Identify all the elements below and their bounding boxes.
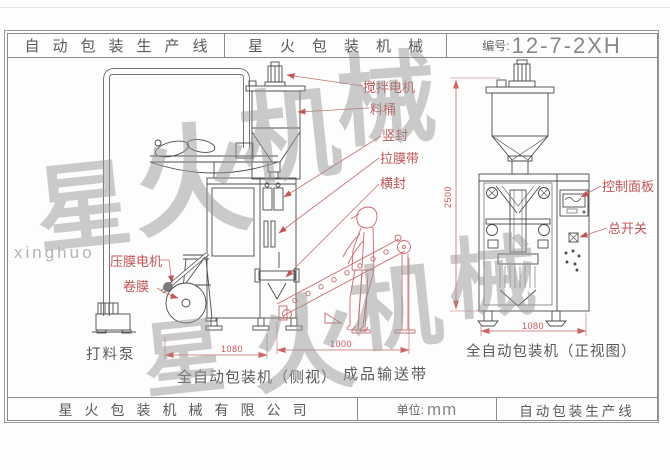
drawing-number-label: 编号: <box>482 37 509 54</box>
label-main-switch: 总开关 <box>608 218 647 237</box>
label-vertical-seal: 竖封 <box>382 125 408 144</box>
caption-side-view: 全自动包装机（侧视） <box>177 366 337 387</box>
top-motor <box>497 60 535 87</box>
unit-value: mm <box>427 400 457 420</box>
label-film-press-motor: 压膜电机 <box>110 251 162 270</box>
footer-product-line: 自动包装生产线 <box>497 398 657 421</box>
dim-front-width: 1080 <box>506 321 560 331</box>
dim-conveyor-length: 1000 <box>315 339 367 349</box>
hopper-tank <box>246 62 305 179</box>
dim-side-width: 1080 <box>204 344 260 354</box>
header-drawing-number: 编号: 12-7-2XH <box>447 34 657 57</box>
label-control-panel: 控制面板 <box>602 176 654 195</box>
footer-unit: 单位: mm <box>358 398 497 421</box>
title-block-header: 自动包装生产线 星火包装机械 编号: 12-7-2XH <box>8 34 657 58</box>
front-view-drawing <box>478 60 589 326</box>
label-horizontal-seal: 横封 <box>380 173 406 192</box>
funnel-hopper <box>486 87 554 174</box>
caption-feed-pump: 打料泵 <box>86 343 136 364</box>
label-mixer-motor: 搅拌电机 <box>363 77 415 96</box>
dim-machine-height: 2500 <box>443 178 453 216</box>
header-company: 星火包装机械 <box>225 34 447 57</box>
feed-pump-drawing <box>92 303 136 333</box>
film-roll-drawing <box>162 254 216 323</box>
label-material-barrel: 料桶 <box>370 99 396 118</box>
main-switch-box <box>565 233 580 271</box>
control-panel-box <box>560 190 588 216</box>
footer-company-name: 星火包装机械有限公司 <box>8 398 358 421</box>
unit-label: 单位: <box>397 401 424 418</box>
conveyor-drawing <box>277 235 415 333</box>
label-film-roll: 卷膜 <box>123 276 149 295</box>
machine-cabinet <box>206 178 302 330</box>
caption-conveyor: 成品输送带 <box>343 363 428 384</box>
header-product-line: 自动包装生产线 <box>8 34 225 57</box>
title-block-footer: 星火包装机械有限公司 单位: mm 自动包装生产线 <box>8 397 657 421</box>
caption-front-view: 全自动包装机（正视图） <box>466 340 637 361</box>
dimension-lines <box>165 78 586 359</box>
mixer-assembly <box>150 138 278 178</box>
label-film-pull-belt: 拉膜带 <box>380 148 419 167</box>
drawing-number-value: 12-7-2XH <box>512 33 622 59</box>
drawing-sheet: 自动包装生产线 星火包装机械 编号: 12-7-2XH 星火包装机械有限公司 单… <box>0 0 670 470</box>
